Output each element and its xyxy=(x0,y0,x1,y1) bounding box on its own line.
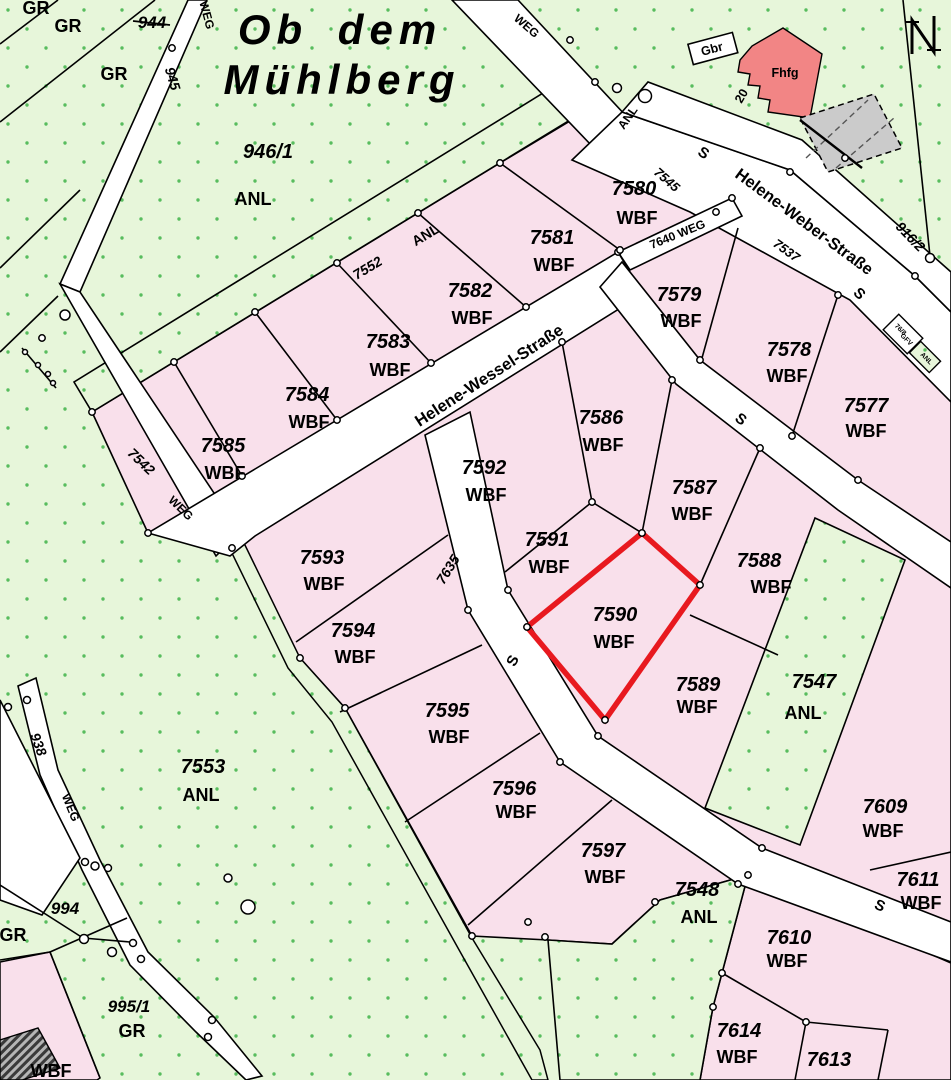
label-wbf: WBF xyxy=(452,308,493,328)
label-7581: 7581 xyxy=(530,227,575,249)
boundary-point xyxy=(91,862,99,870)
label-gr: GR xyxy=(55,16,82,36)
label-944: 944 xyxy=(138,13,167,32)
boundary-point xyxy=(589,499,595,505)
boundary-point xyxy=(697,582,703,588)
boundary-point xyxy=(926,254,935,263)
boundary-point xyxy=(542,934,548,940)
label-wbf: WBF xyxy=(370,360,411,380)
label-994: 994 xyxy=(51,899,80,918)
label-wbf: WBF xyxy=(585,867,626,887)
boundary-point xyxy=(710,1004,716,1010)
label-wbf: WBF xyxy=(846,421,887,441)
map-title-line1: Ob dem xyxy=(238,6,442,53)
label-wbf: WBF xyxy=(751,577,792,597)
label-wbf: WBF xyxy=(901,893,942,913)
label-wbf: WBF xyxy=(289,412,330,432)
label-7611: 7611 xyxy=(896,869,939,891)
label-wbf: WBF xyxy=(617,208,658,228)
boundary-point xyxy=(171,359,177,365)
boundary-point xyxy=(169,45,175,51)
boundary-point xyxy=(465,607,471,613)
label-7596: 7596 xyxy=(492,778,537,800)
label-7592: 7592 xyxy=(462,457,507,479)
boundary-point xyxy=(80,935,89,944)
boundary-point xyxy=(592,79,598,85)
label-gr: GR xyxy=(0,925,27,945)
label-wbf: WBF xyxy=(429,727,470,747)
map-title-line2: Mühlberg xyxy=(224,56,461,103)
boundary-point xyxy=(525,919,531,925)
label-wbf: WBF xyxy=(863,821,904,841)
label-wbf: WBF xyxy=(466,485,507,505)
label-7595: 7595 xyxy=(425,700,470,722)
boundary-point xyxy=(855,477,861,483)
boundary-point xyxy=(138,956,145,963)
label-7614: 7614 xyxy=(717,1020,762,1042)
label-anl: ANL xyxy=(785,703,822,723)
label-7587: 7587 xyxy=(672,477,717,499)
boundary-point xyxy=(224,874,232,882)
label-wbf: WBF xyxy=(767,366,808,386)
boundary-point xyxy=(23,350,28,355)
boundary-point xyxy=(205,1034,212,1041)
boundary-point xyxy=(108,948,117,957)
label-7613: 7613 xyxy=(807,1049,852,1071)
boundary-point xyxy=(524,624,530,630)
boundary-point xyxy=(334,260,340,266)
label-7597: 7597 xyxy=(581,840,626,862)
label-995-1: 995/1 xyxy=(108,997,151,1016)
boundary-point xyxy=(613,84,622,93)
boundary-point xyxy=(505,587,511,593)
boundary-point xyxy=(297,655,303,661)
boundary-point xyxy=(567,37,573,43)
boundary-point xyxy=(46,372,51,377)
boundary-point xyxy=(130,940,137,947)
label-wbf: WBF xyxy=(672,504,713,524)
boundary-point xyxy=(803,1019,809,1025)
label-7591: 7591 xyxy=(525,529,570,551)
label-wbf: WBF xyxy=(677,697,718,717)
label-7579: 7579 xyxy=(657,284,702,306)
boundary-point xyxy=(252,309,258,315)
boundary-point xyxy=(639,530,645,536)
label-wbf: WBF xyxy=(335,647,376,667)
boundary-point xyxy=(145,530,151,536)
boundary-point xyxy=(469,933,475,939)
boundary-point xyxy=(759,845,765,851)
label-gr: GR xyxy=(23,0,50,18)
boundary-point xyxy=(24,697,31,704)
boundary-point xyxy=(789,433,795,439)
label-wbf: WBF xyxy=(205,463,246,483)
label-7577: 7577 xyxy=(844,395,889,417)
boundary-point xyxy=(595,733,601,739)
label-7578: 7578 xyxy=(767,339,812,361)
label-7585: 7585 xyxy=(201,435,246,457)
boundary-point xyxy=(745,872,751,878)
label-7582: 7582 xyxy=(448,280,493,302)
label-wbf: WBF xyxy=(534,255,575,275)
boundary-point xyxy=(669,377,675,383)
boundary-point xyxy=(729,195,735,201)
map-canvas: GRGR944GR945WEG946/1ANL7552ANLWEGANLS754… xyxy=(0,0,951,1080)
label-wbf: WBF xyxy=(767,951,808,971)
label-7547: 7547 xyxy=(792,671,837,693)
label-7594: 7594 xyxy=(331,620,376,642)
boundary-point xyxy=(428,360,434,366)
boundary-point xyxy=(835,292,841,298)
boundary-point xyxy=(334,417,340,423)
label-wbf: WBF xyxy=(594,632,635,652)
boundary-point xyxy=(60,310,70,320)
boundary-point xyxy=(39,335,45,341)
label-7609: 7609 xyxy=(863,796,908,818)
boundary-point xyxy=(36,363,41,368)
boundary-point xyxy=(697,357,703,363)
label-wbf: WBF xyxy=(529,557,570,577)
boundary-point xyxy=(342,705,348,711)
boundary-point xyxy=(229,545,235,551)
boundary-point xyxy=(209,1017,216,1024)
boundary-point xyxy=(757,445,763,451)
boundary-point xyxy=(602,717,608,723)
boundary-point xyxy=(5,704,12,711)
label-7610: 7610 xyxy=(767,927,812,949)
boundary-point xyxy=(652,899,658,905)
boundary-point xyxy=(787,169,793,175)
label-7583: 7583 xyxy=(366,331,411,353)
label-7580: 7580 xyxy=(612,178,657,200)
boundary-point xyxy=(713,209,719,215)
label-7588: 7588 xyxy=(737,550,782,572)
label-946-1: 946/1 xyxy=(243,141,293,163)
label-7584: 7584 xyxy=(285,384,330,406)
label-wbf: WBF xyxy=(717,1047,758,1067)
boundary-point xyxy=(639,90,652,103)
boundary-point xyxy=(89,409,95,415)
label-7586: 7586 xyxy=(579,407,624,429)
boundary-point xyxy=(912,273,918,279)
label-7548: 7548 xyxy=(675,879,720,901)
boundary-point xyxy=(105,865,112,872)
boundary-point xyxy=(842,155,848,161)
label-7589: 7589 xyxy=(676,674,721,696)
boundary-point xyxy=(51,381,56,386)
boundary-point xyxy=(523,304,529,310)
boundary-point xyxy=(735,881,741,887)
label-fhfg: Fhfg xyxy=(771,66,798,80)
label-wbf: WBF xyxy=(496,802,537,822)
boundary-point xyxy=(557,759,563,765)
boundary-point xyxy=(497,160,503,166)
boundary-point xyxy=(617,247,623,253)
label-wbf: WBF xyxy=(583,435,624,455)
label-anl: ANL xyxy=(235,189,272,209)
boundary-point xyxy=(415,210,421,216)
label-gr: GR xyxy=(119,1021,146,1041)
label-7593: 7593 xyxy=(300,547,345,569)
boundary-point xyxy=(719,970,725,976)
boundary-point xyxy=(82,859,89,866)
label-gr: GR xyxy=(101,64,128,84)
boundary-point xyxy=(241,900,255,914)
label-anl: ANL xyxy=(681,907,718,927)
label-wbf: WBF xyxy=(661,311,702,331)
label-wbf: WBF xyxy=(31,1061,72,1080)
label-7590: 7590 xyxy=(593,604,638,626)
label-7553: 7553 xyxy=(181,756,226,778)
label-anl: ANL xyxy=(183,785,220,805)
label-wbf: WBF xyxy=(304,574,345,594)
cadastral-map: GRGR944GR945WEG946/1ANL7552ANLWEGANLS754… xyxy=(0,0,951,1080)
